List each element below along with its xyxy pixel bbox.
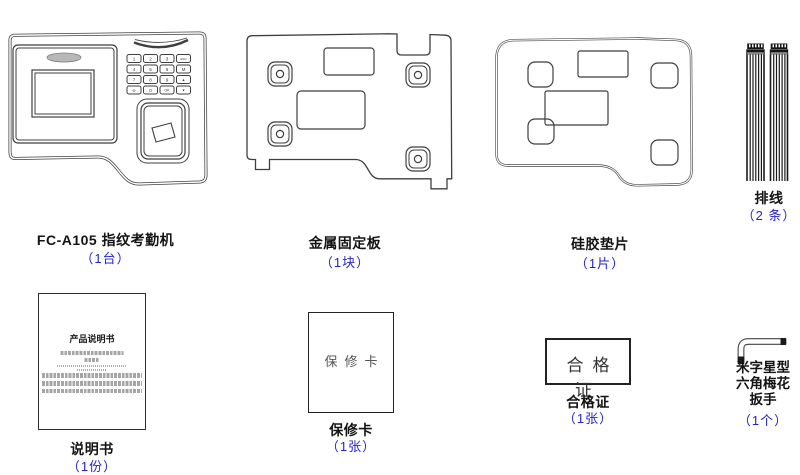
manual-text-line — [42, 381, 142, 386]
manual-text-line — [42, 373, 142, 378]
key-label-power-icon: Φ — [132, 88, 135, 93]
plate-label: 金属固定板 — [270, 233, 420, 253]
certificate-qty: （1张） — [538, 408, 638, 427]
metal-plate-illustration — [238, 28, 453, 223]
wrench-label-line1: 米字星型 — [722, 360, 800, 376]
cables-qty: （2 条） — [733, 205, 800, 224]
key-label: 5 — [149, 67, 152, 72]
key-label-menu: M — [182, 67, 186, 72]
key-label: 1 — [133, 56, 136, 61]
ribbon-cables-illustration — [746, 43, 792, 185]
wrench-qty: （1个） — [722, 410, 800, 429]
warranty-qty: （1张） — [301, 436, 401, 455]
cable-ribbon — [747, 54, 764, 181]
pad-qty: （1片） — [525, 253, 675, 272]
key-label-ok: OK — [164, 89, 170, 93]
plate-outline — [247, 34, 452, 189]
key-label: 8 — [149, 77, 152, 82]
wrench-label: 米字星型 六角梅花 扳手 — [722, 360, 800, 408]
pad-label: 硅胶垫片 — [525, 234, 675, 254]
manual-text-line — [61, 351, 124, 355]
plate-qty: （1块） — [270, 252, 420, 271]
key-label: 2 — [149, 56, 152, 61]
cable-connector — [746, 49, 764, 54]
key-label: 6 — [166, 67, 169, 72]
key-label: 0 — [149, 88, 152, 93]
manual-page-illustration: 产品说明书 — [38, 293, 146, 430]
key-label-down-icon: ▼ — [182, 89, 186, 93]
wrench-label-line2: 六角梅花 — [722, 376, 800, 392]
wrench-tip-right — [781, 338, 787, 345]
cable-connector — [770, 49, 788, 54]
key-label-up-icon: ▲ — [182, 78, 186, 82]
manual-text-line — [77, 369, 107, 371]
speaker-slot — [47, 53, 81, 62]
pad-outline — [497, 39, 692, 186]
device-qty: （1台） — [8, 248, 203, 267]
key-label-esc: ESC — [180, 57, 187, 61]
silicone-pad-illustration — [488, 33, 698, 198]
certificate-illustration: 合格证 — [545, 338, 631, 385]
manual-page-title: 产品说明书 — [39, 332, 145, 345]
ribbon-cable-1 — [746, 44, 764, 182]
key-label: 7 — [133, 77, 136, 82]
manual-text-line — [42, 389, 142, 394]
manual-text-line — [85, 358, 100, 362]
key-label: 4 — [133, 67, 136, 72]
device-illustration: 1 2 3 ESC 4 5 6 M 7 8 9 ▲ Φ 0 OK ▼ — [4, 30, 214, 198]
manual-qty: （1份） — [42, 456, 142, 475]
wrench-body-outline — [741, 342, 782, 363]
lcd-screen — [32, 70, 94, 117]
manual-text-line — [57, 365, 127, 367]
device-label: FC-A105 指纹考勤机 — [8, 230, 203, 250]
wrench-label-line3: 扳手 — [722, 392, 800, 408]
warranty-card-illustration: 保修卡 — [308, 312, 394, 413]
cable-ribbon — [771, 54, 788, 181]
ribbon-cable-2 — [770, 44, 788, 182]
key-label: 3 — [166, 56, 169, 61]
packing-list-page: 1 2 3 ESC 4 5 6 M 7 8 9 ▲ Φ 0 OK ▼ FC-A1… — [0, 0, 800, 475]
warranty-card-text: 保修卡 — [309, 351, 393, 370]
key-label: 9 — [166, 77, 169, 82]
